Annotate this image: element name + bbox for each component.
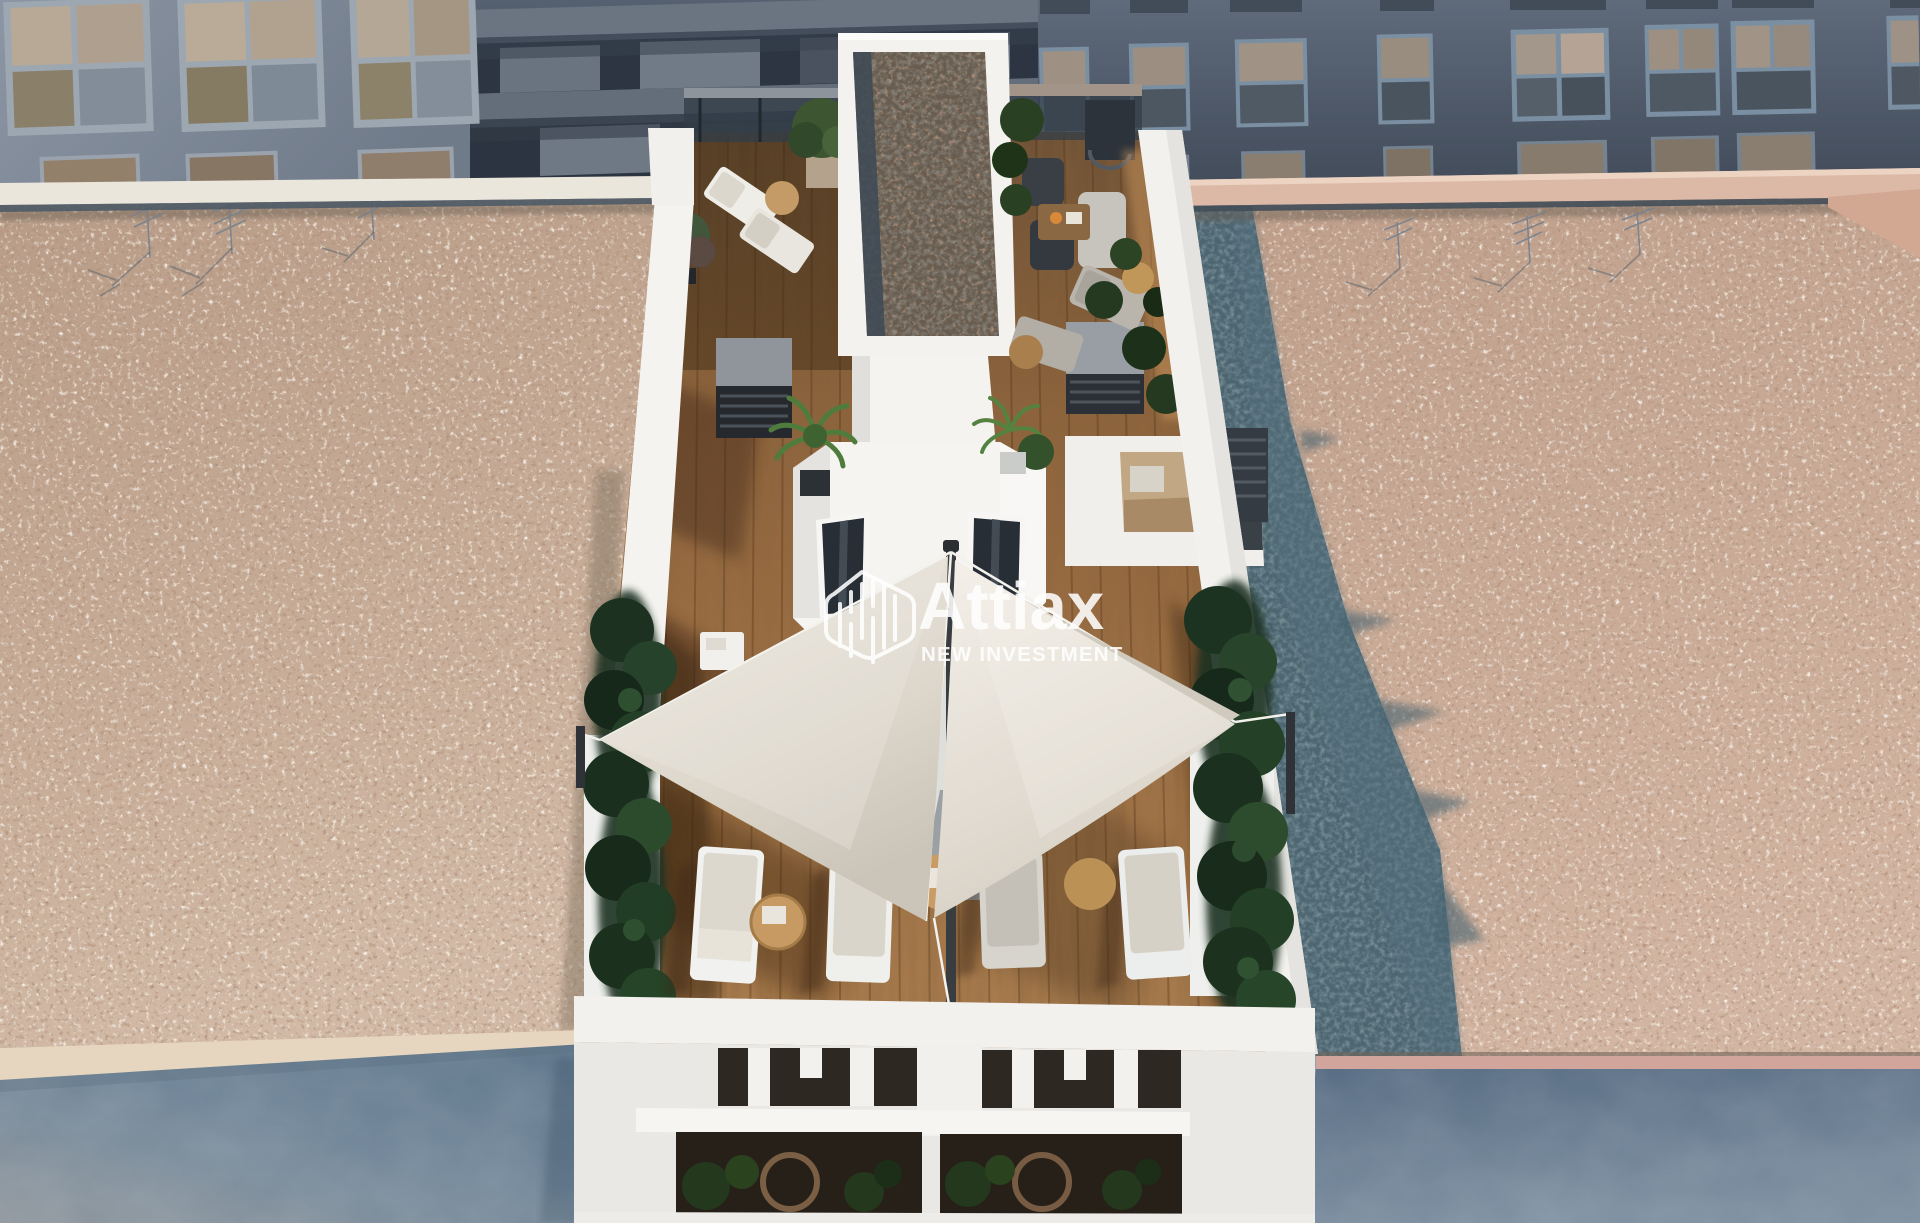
svg-text:Attiax: Attiax [918,569,1104,644]
svg-text:NEW INVESTMENT: NEW INVESTMENT [921,643,1123,666]
